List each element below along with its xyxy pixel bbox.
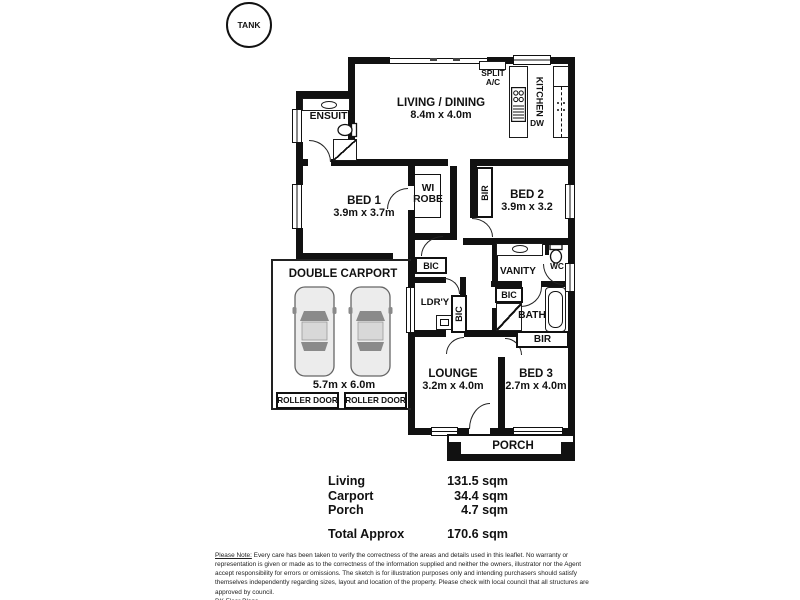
door-arc-ensuite [309,140,331,162]
kitchen-bench-pantry [553,66,569,138]
summary-value: 4.7 sqm [461,503,508,518]
closet-bic-laundry: BIC [451,295,467,333]
disclaimer: Please Note: Every care has been taken t… [215,551,597,600]
bir-label: BIR [480,185,490,201]
car-icon [348,285,393,378]
ensuite-toilet-icon [336,122,358,138]
disclaimer-note-label: Please Note: [215,552,252,559]
window-mullion [453,58,460,61]
window [292,184,302,229]
window [292,109,302,143]
wall [470,159,575,166]
wall [348,57,390,64]
roller-door-label: ROLLER DOOR [277,396,338,405]
closet-bic-hall: BIC [415,257,447,274]
door-arc-lounge [446,337,464,354]
summary-label: Porch [328,503,364,518]
pantry-dashed-line [561,87,562,137]
room-label-living: LIVING / DINING [397,97,485,109]
disclaimer-text: Every care has been taken to verify the … [215,552,589,596]
wall [568,291,575,435]
door-arc-front-entry [469,403,490,429]
room-dims-bed2: 3.9m x 3.2 [501,202,553,213]
room-label-porch: PORCH [492,440,534,452]
area-summary: Living 131.5 sqm Carport 34.4 sqm Porch … [328,474,508,541]
floor-plan-page: TANK [0,0,800,600]
kitchen-text: KITCHEN [534,77,543,117]
room-dims-carport: 5.7m x 6.0m [313,380,375,392]
room-dims-lounge: 3.2m x 4.0m [422,381,483,392]
summary-row: Porch 4.7 sqm [328,503,508,518]
trough-inner [440,319,449,326]
bic-label: BIC [423,261,439,271]
room-dims-bed1: 3.9m x 3.7m [333,208,394,219]
dishwasher-label: DW [530,119,544,128]
summary-label: Living [328,474,365,489]
door-arc-wirobe [387,188,408,209]
room-label-laundry: LDR'Y [421,298,449,308]
car-icon [292,285,337,378]
summary-row: Carport 34.4 sqm [328,489,508,504]
room-label-wirobe-2: ROBE [413,195,443,206]
bir-label: BIR [534,334,551,345]
wall [464,330,498,337]
split-ac-label-2: A/C [486,78,500,87]
wc-label: WC [550,262,564,271]
room-label-kitchen: KITCHEN [519,92,559,101]
wall [296,91,355,98]
tank-label: TANK [238,20,261,30]
room-dims-bed3: 2.7m x 4.0m [505,381,566,392]
window [565,184,575,219]
wall [450,166,457,233]
wall [549,57,575,64]
door-arc-bath [521,287,542,307]
summary-label: Carport [328,489,373,504]
room-dims-living: 8.4m x 4.0m [410,110,471,121]
summary-value: 131.5 sqm [447,474,508,489]
window-mullion [430,58,437,61]
wall [415,277,446,283]
summary-total-value: 170.6 sqm [447,527,508,542]
bic-label: BIC [501,290,517,300]
closet-bic-bath: BIC [495,287,523,303]
window [513,55,551,65]
closet-bir-bed3: BIR [516,331,569,348]
bathtub [545,287,566,332]
roller-door-left: ROLLER DOOR [276,392,339,409]
summary-value: 34.4 sqm [454,489,508,504]
room-label-bed2: BED 2 [510,189,544,201]
room-label-carport: DOUBLE CARPORT [289,268,398,280]
summary-row: Living 131.5 sqm [328,474,508,489]
roller-door-right: ROLLER DOOR [344,392,407,409]
wall [296,159,308,166]
roller-door-label: ROLLER DOOR [345,396,406,405]
room-label-vanity: VANITY [500,267,536,278]
bic-label: BIC [454,306,464,322]
room-label-bed3: BED 3 [519,368,553,380]
vanity-basin [512,245,528,253]
porch-post [449,442,461,454]
ensuite-basin [321,101,337,109]
wall [408,428,431,435]
closet-bir-bed2: BIR [476,167,493,218]
bathtub-inner [548,291,563,328]
summary-total-row: Total Approx 170.6 sqm [328,527,508,542]
room-label-bed1: BED 1 [347,195,381,207]
wall [568,64,575,185]
room-label-bath: BATH [518,311,546,322]
ensuite-shower [333,139,357,161]
window [565,263,575,292]
door-arc-bed2 [472,218,493,237]
room-label-ensuite: ENSUITE [310,112,355,123]
room-label-lounge: LOUNGE [428,368,477,380]
wall [498,357,505,428]
summary-total-label: Total Approx [328,527,404,542]
window-band [390,58,487,64]
door-arc-laundry [444,278,460,294]
porch-post [561,442,573,454]
water-tank-circle: TANK [226,2,272,48]
